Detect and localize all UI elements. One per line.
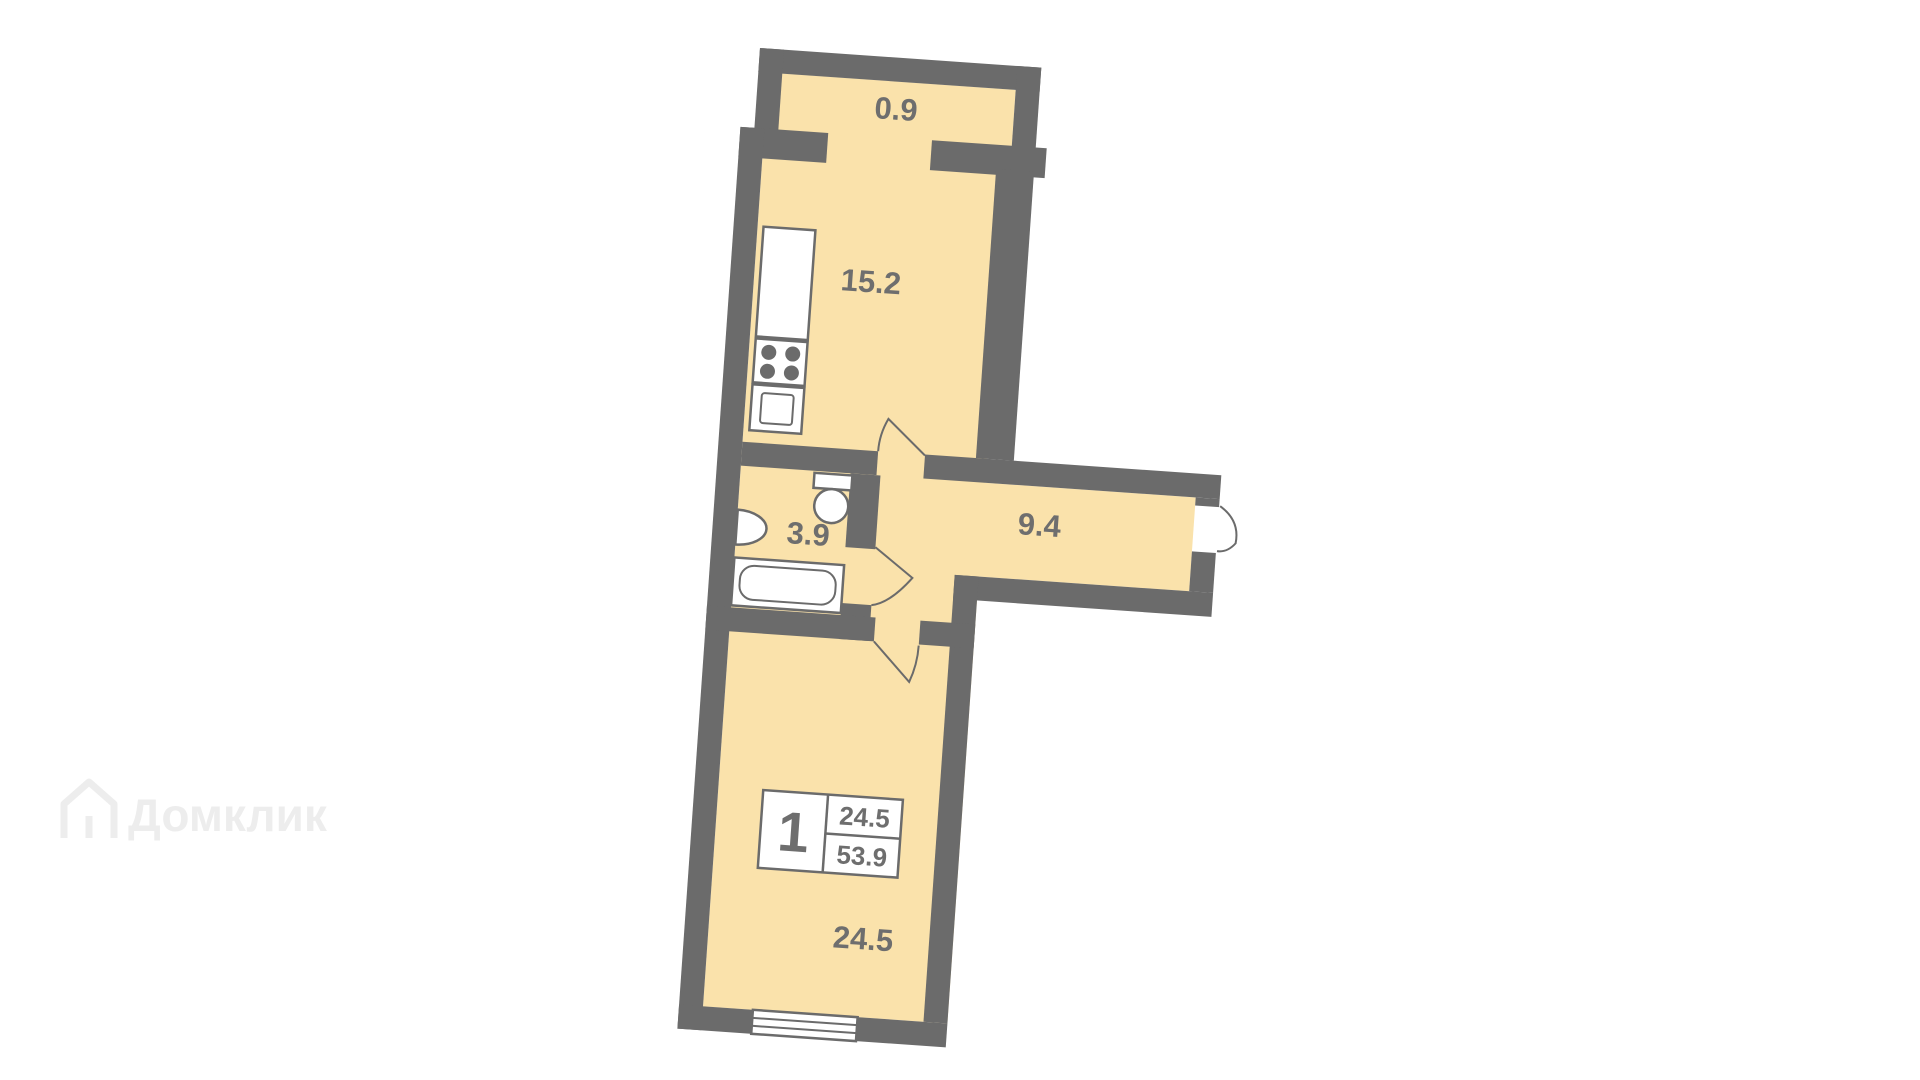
wall-living-top-right <box>919 621 976 649</box>
bathroom-area-label: 3.9 <box>785 515 830 553</box>
entrance-door <box>1217 506 1238 552</box>
living-area-label: 24.5 <box>832 919 895 958</box>
stove <box>753 338 808 386</box>
wall-wing-end-top-stub <box>1195 497 1219 507</box>
hallway-wing-floor <box>964 482 1196 592</box>
floorplan-page: Домклик <box>0 0 1920 1080</box>
legend-total-area: 53.9 <box>836 839 889 872</box>
kitchen-area-label: 15.2 <box>840 262 903 301</box>
house-logo-icon <box>64 782 114 838</box>
legend: 1 24.5 53.9 <box>758 790 903 878</box>
hallway-area-label: 9.4 <box>1017 506 1063 544</box>
watermark-text: Домклик <box>128 789 328 841</box>
bathtub <box>731 557 844 613</box>
wall-wing-end-bottom-stub <box>1189 551 1216 593</box>
legend-living-area: 24.5 <box>838 800 891 833</box>
legend-rooms-count: 1 <box>776 799 811 864</box>
floorplan-canvas: Домклик <box>0 0 1920 1080</box>
kitchen-sink-unit <box>749 384 804 434</box>
kitchen-counter <box>756 227 816 340</box>
balcony-area-label: 0.9 <box>873 90 918 128</box>
watermark: Домклик <box>64 782 328 841</box>
floorplan: 0.9 15.2 3.9 9.4 24.5 1 24.5 53.9 <box>677 47 1268 1065</box>
